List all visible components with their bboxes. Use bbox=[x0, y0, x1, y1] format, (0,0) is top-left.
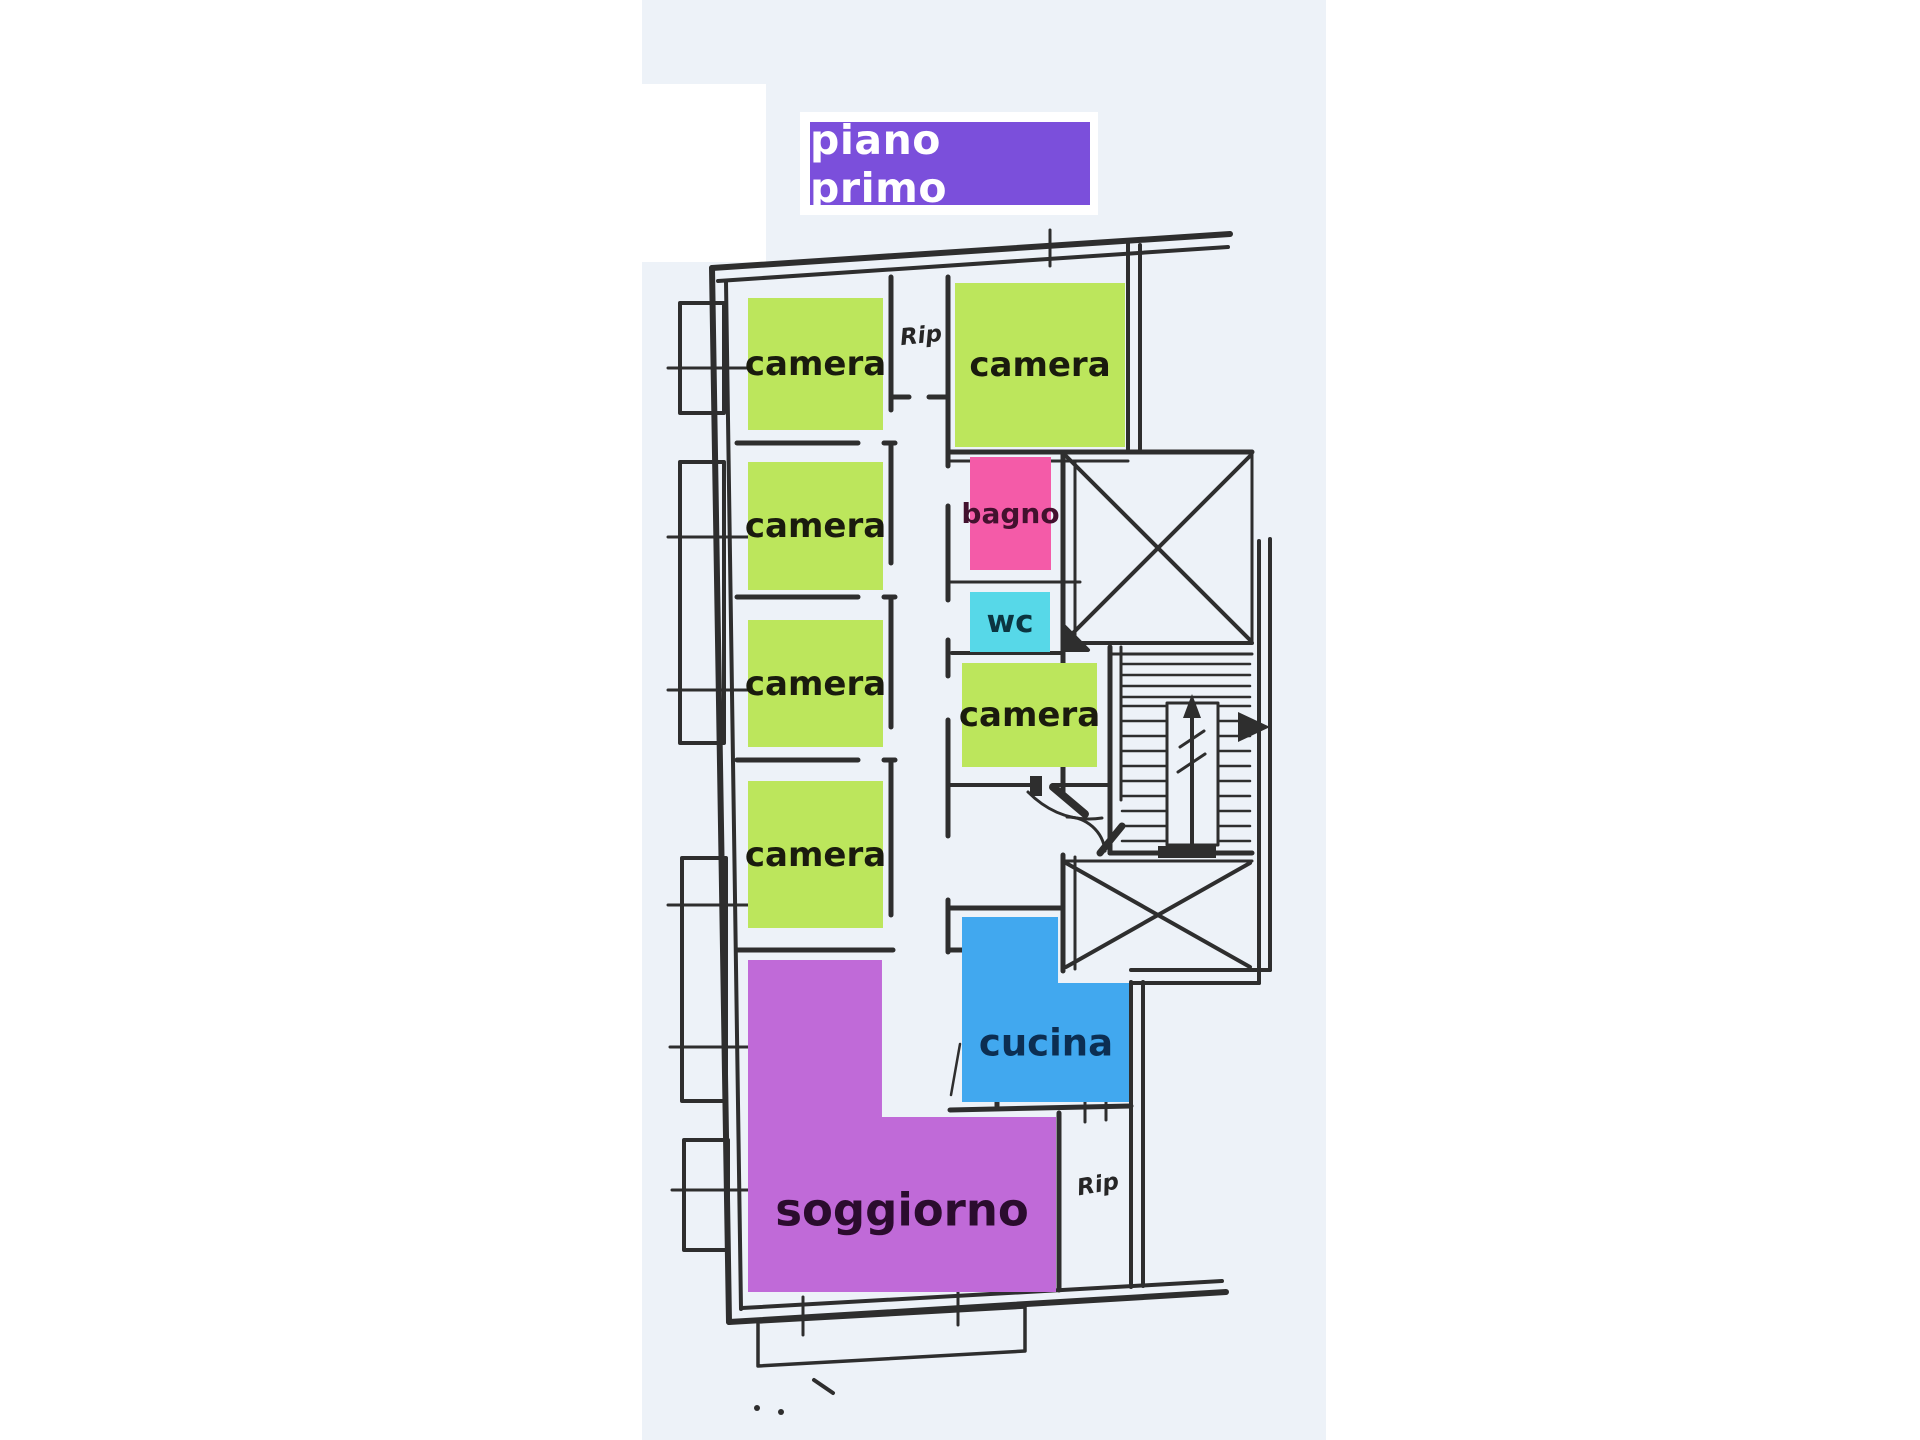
room-camera-top-right: camera bbox=[955, 283, 1125, 447]
room-label-camera-4: camera bbox=[745, 835, 886, 875]
room-camera-3: camera bbox=[748, 620, 883, 747]
room-label-camera-1: camera bbox=[745, 344, 886, 384]
room-label-bagno: bagno bbox=[961, 497, 1059, 530]
room-label-camera-5: camera bbox=[959, 695, 1100, 735]
title-frame: piano primo bbox=[800, 112, 1098, 215]
room-camera-5: camera bbox=[962, 663, 1097, 767]
room-label-cucina: cucina bbox=[979, 1022, 1113, 1065]
room-camera-2: camera bbox=[748, 462, 883, 590]
page-title: piano primo bbox=[810, 116, 1090, 212]
room-label-camera-3: camera bbox=[745, 664, 886, 704]
room-label-camera-top-right: camera bbox=[969, 345, 1110, 385]
room-wc: wc bbox=[970, 592, 1050, 652]
light-shaft-upper bbox=[1063, 456, 1252, 650]
room-camera-4: camera bbox=[748, 781, 883, 928]
room-label-wc: wc bbox=[986, 604, 1033, 640]
annotation-rip-upper: Rip bbox=[891, 317, 950, 355]
room-label-camera-2: camera bbox=[745, 506, 886, 546]
room-camera-1: camera bbox=[748, 298, 883, 430]
room-bagno: bagno bbox=[970, 457, 1051, 570]
floor-plan-page: piano primo camera camera camera camera … bbox=[0, 0, 1920, 1440]
title-badge: piano primo bbox=[810, 122, 1090, 205]
light-shaft-lower bbox=[1066, 863, 1250, 967]
room-label-soggiorno: soggiorno bbox=[775, 1184, 1029, 1237]
